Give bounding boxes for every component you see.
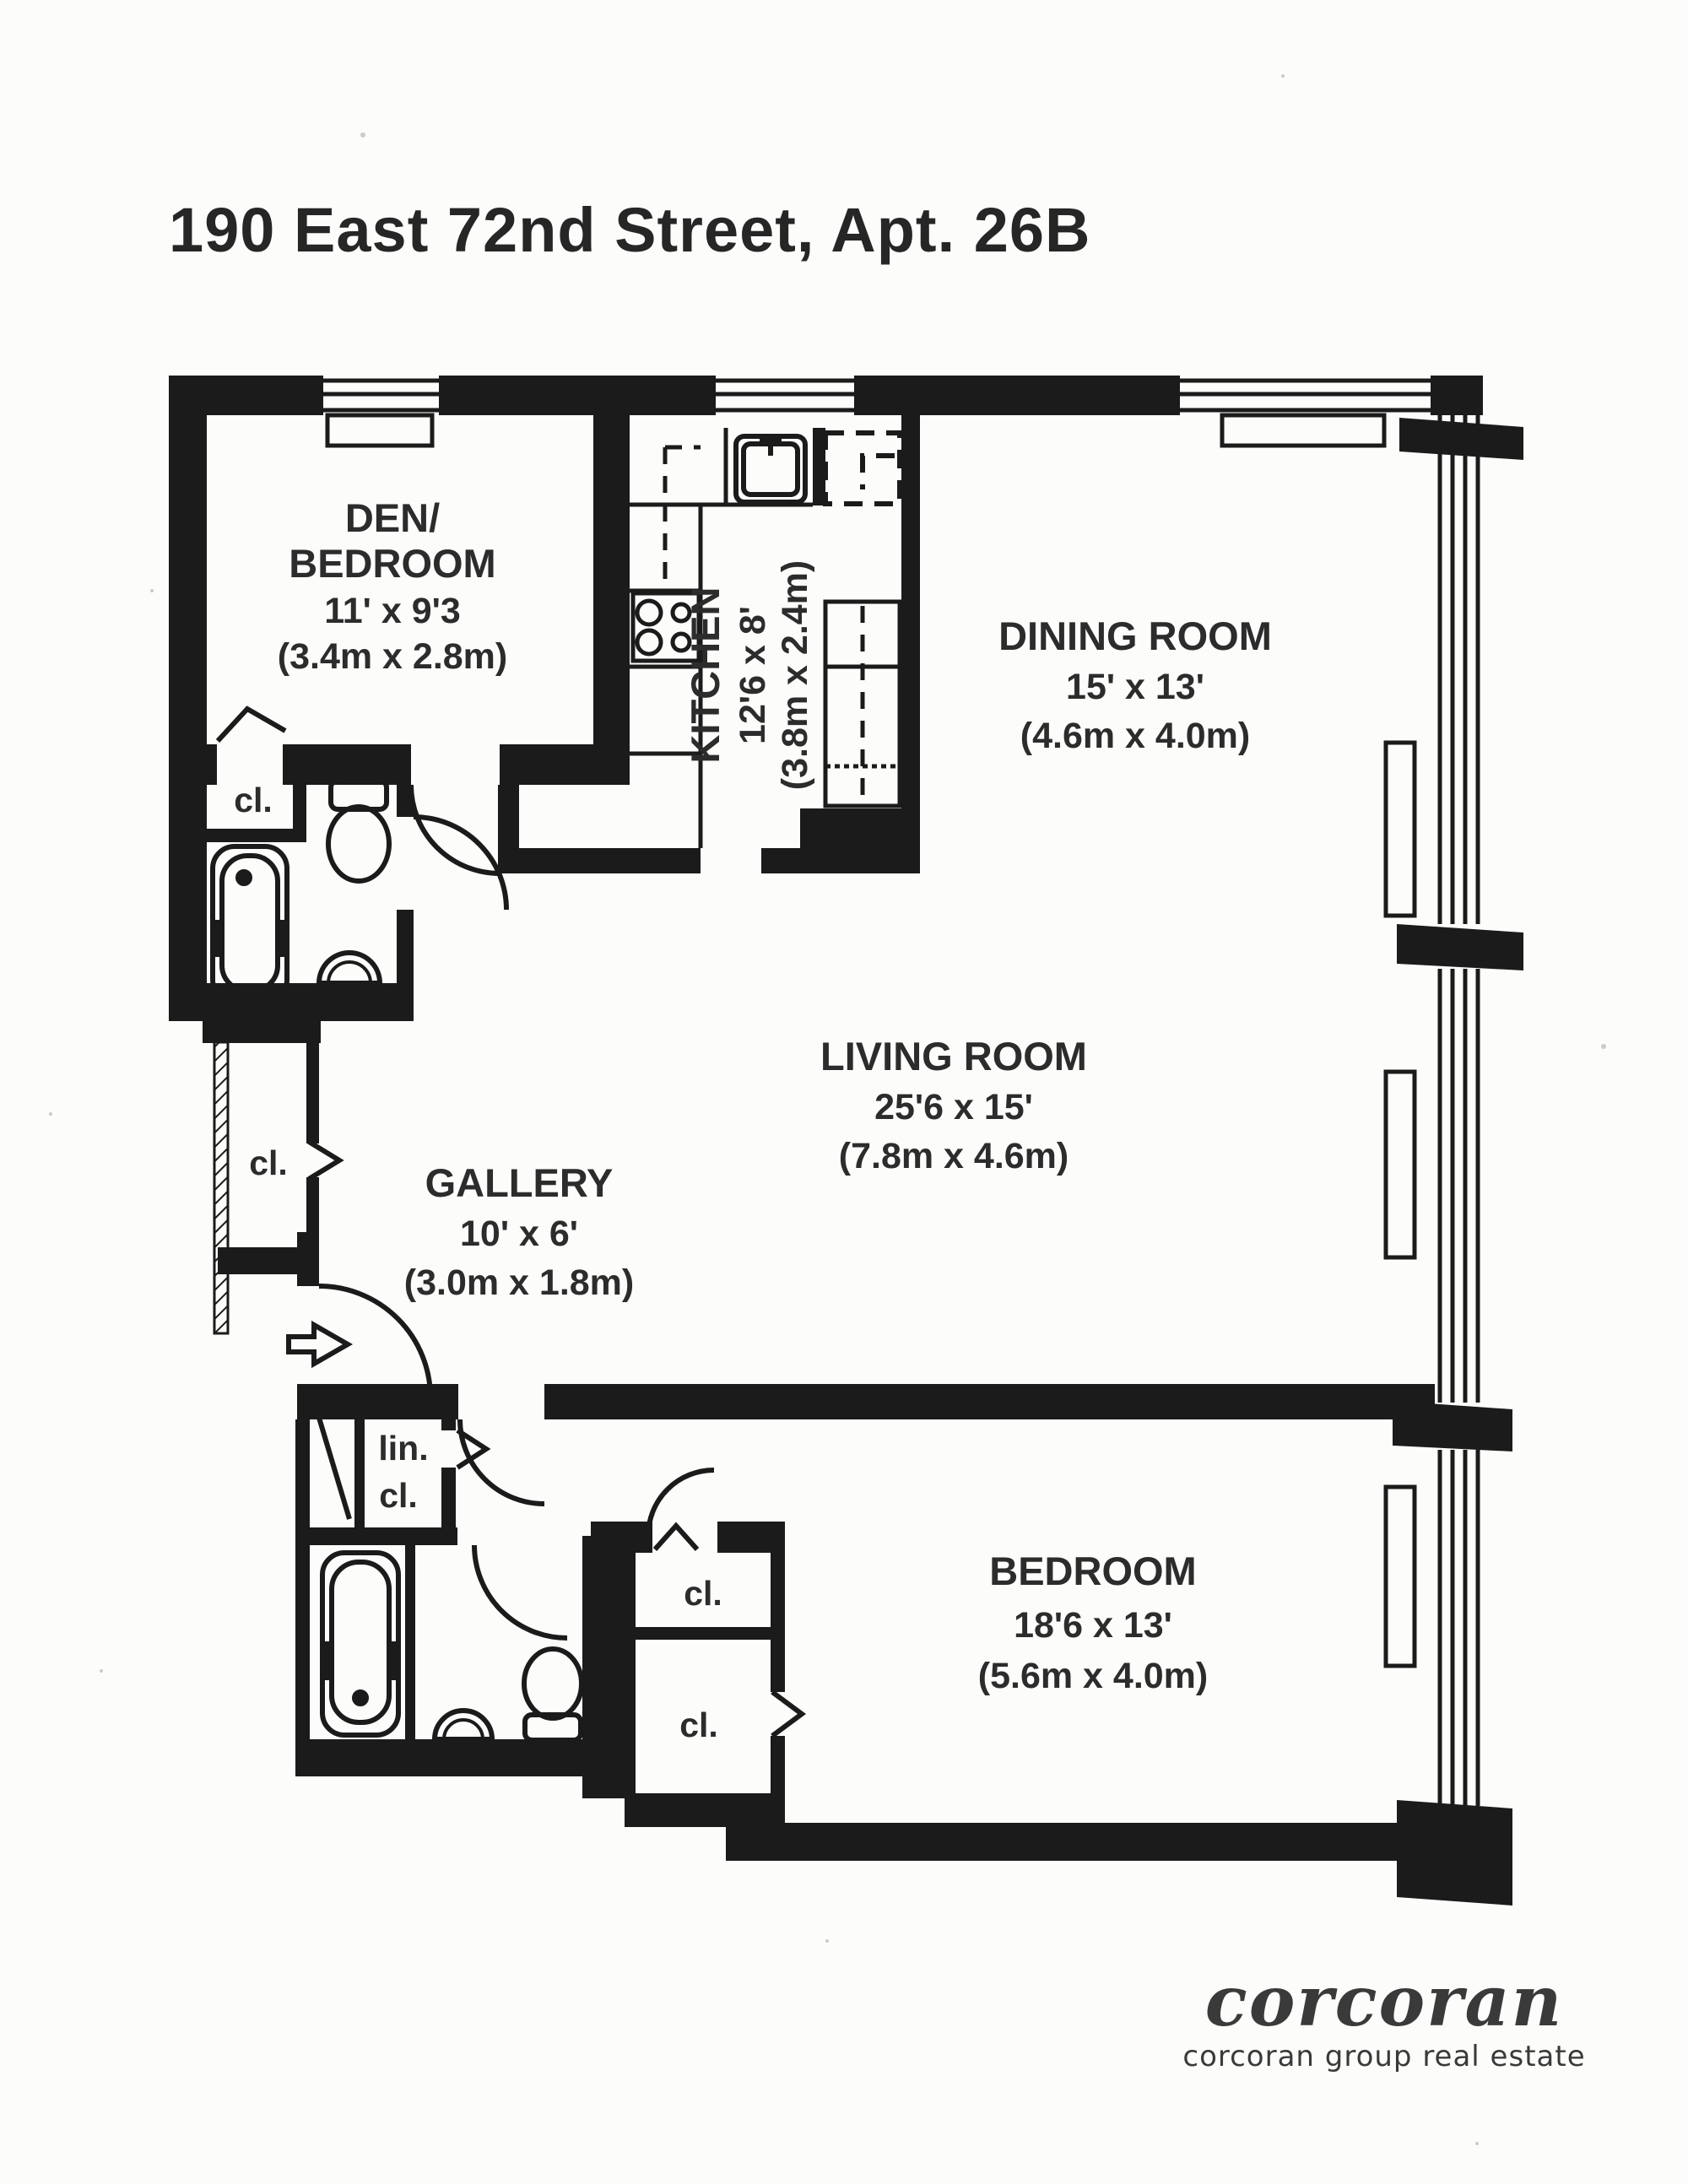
window-kitchen	[716, 381, 854, 410]
closet-label-bath1: cl.	[234, 781, 273, 819]
room-label-den: DEN/ BEDROOM 11' x 9'3 (3.4m x 2.8m)	[278, 495, 507, 677]
window-wall-right-3	[1440, 1450, 1478, 1806]
wall-entry-jamb	[297, 1232, 319, 1286]
sink-1	[319, 953, 380, 983]
svg-text:12'6 x 8': 12'6 x 8'	[733, 606, 773, 744]
svg-text:(3.8m x 2.4m): (3.8m x 2.4m)	[775, 560, 815, 790]
svg-text:(3.4m x 2.8m): (3.4m x 2.8m)	[278, 636, 507, 677]
wall-bath2-left-upper	[295, 1419, 310, 1529]
wall-top-corner	[1431, 376, 1483, 415]
svg-text:GALLERY: GALLERY	[425, 1160, 614, 1205]
wall-bath2-right-mass	[582, 1536, 636, 1798]
wall-lin-right-a	[441, 1393, 456, 1430]
page-title: 190 East 72nd Street, Apt. 26B	[169, 195, 1090, 265]
wall-gallery-south-a	[297, 1384, 458, 1419]
room-label-dining: DINING ROOM 15' x 13' (4.6m x 4.0m)	[998, 614, 1272, 756]
svg-text:(7.8m x 4.6m): (7.8m x 4.6m)	[839, 1136, 1069, 1176]
floorplan-drawing: 190 East 72nd Street, Apt. 26B DEN/ BEDR…	[0, 0, 1688, 2184]
radiator-dining	[1386, 743, 1415, 916]
room-label-gallery: GALLERY 10' x 6' (3.0m x 1.8m)	[404, 1160, 634, 1303]
wall-dining-west-notch	[761, 848, 800, 873]
toilet-1	[328, 781, 389, 881]
wall-brclo-top-b	[717, 1522, 785, 1553]
room-label-living: LIVING ROOM 25'6 x 15' (7.8m x 4.6m)	[820, 1034, 1087, 1176]
toilet-2	[524, 1649, 582, 1740]
wall-hatched-gallery	[214, 1042, 228, 1333]
svg-text:BEDROOM: BEDROOM	[289, 541, 495, 586]
wall-gclo-right-a	[306, 1042, 319, 1143]
window-dining-top	[1180, 381, 1431, 410]
wall-closet1-bottom	[207, 829, 306, 842]
door-chevron-lower-closet	[772, 1692, 802, 1736]
wall-bath2-left-lower	[295, 1527, 310, 1776]
wall-den-right	[593, 415, 630, 766]
wall-brclo-top-a	[591, 1522, 652, 1553]
wall-dining-west-mass	[800, 808, 920, 873]
refrigerator	[825, 433, 900, 504]
wall-left	[169, 376, 207, 1021]
svg-text:10' x 6': 10' x 6'	[460, 1214, 578, 1254]
sill-den	[327, 415, 432, 446]
wall-gallery-south-b	[544, 1384, 1435, 1419]
svg-text:(3.0m x 1.8m): (3.0m x 1.8m)	[404, 1262, 634, 1303]
door-chevron-den-closet	[218, 709, 285, 741]
closet-label-linen-1: lin.	[378, 1429, 428, 1468]
wall-tub2-divider	[405, 1545, 415, 1739]
wall-brclo-east-a	[771, 1553, 785, 1692]
wall-lin-right-b	[441, 1468, 456, 1533]
door-chevron-bedroom-closet	[655, 1526, 697, 1549]
sill-dining-top	[1222, 415, 1384, 446]
wall-closet1-right	[293, 744, 306, 842]
wall-bath1-bottom	[169, 983, 414, 1021]
wall-under-lin	[297, 1527, 457, 1545]
svg-text:DINING ROOM: DINING ROOM	[998, 614, 1272, 658]
closet-label-linen-2: cl.	[379, 1476, 418, 1515]
pier-living-bedroom	[1393, 1401, 1512, 1451]
wall-brclo-bottom	[625, 1793, 785, 1827]
wall-top-3	[854, 376, 1180, 415]
wall-hall-east	[498, 785, 519, 852]
svg-text:15' x 13': 15' x 13'	[1066, 667, 1204, 707]
wall-den-south-c	[500, 744, 630, 785]
wall-bath1-right-b	[397, 910, 414, 986]
closet-label-bedroom-lower: cl.	[679, 1706, 718, 1744]
bathtub-1	[211, 846, 289, 1002]
window-wall-right-1	[1440, 415, 1478, 924]
upper-cabinets-dashed	[665, 447, 701, 591]
pier-top-right	[1399, 418, 1523, 460]
door-chevron-gallery-closet	[309, 1142, 339, 1179]
svg-text:BEDROOM: BEDROOM	[989, 1549, 1196, 1593]
svg-text:DEN/: DEN/	[345, 495, 440, 540]
pier-dining-living	[1397, 924, 1523, 970]
svg-text:(5.6m x 4.0m): (5.6m x 4.0m)	[978, 1656, 1208, 1696]
window-den	[323, 381, 439, 410]
wall-kitchen-south	[498, 848, 701, 873]
svg-text:LIVING ROOM: LIVING ROOM	[820, 1034, 1087, 1078]
bathtub-2	[321, 1553, 400, 1735]
closet-label-gallery: cl.	[249, 1143, 288, 1182]
logo-brand: corcoran	[1205, 1961, 1563, 2042]
svg-text:18'6 x 13': 18'6 x 13'	[1014, 1605, 1172, 1646]
door-arc-bath2	[474, 1545, 567, 1638]
logo-tagline: corcoran group real estate	[1182, 2040, 1585, 2073]
room-label-kitchen: KITCHEN 12'6 x 8' (3.8m x 2.4m)	[683, 560, 815, 790]
floorplan-page: 190 East 72nd Street, Apt. 26B DEN/ BEDR…	[0, 0, 1688, 2184]
wall-brclo-east-b	[771, 1736, 785, 1797]
corcoran-logo: corcoran corcoran group real estate	[1182, 1961, 1585, 2073]
wall-dining-west	[901, 415, 920, 810]
wall-bedroom-south	[726, 1823, 1435, 1861]
wall-gclo-top	[203, 1019, 321, 1043]
kitchen-sink	[736, 436, 805, 502]
wall-top-2	[439, 376, 716, 415]
sink-2	[435, 1711, 492, 1739]
svg-text:25'6 x 15': 25'6 x 15'	[874, 1087, 1033, 1127]
svg-text:11' x 9'3: 11' x 9'3	[324, 591, 461, 631]
wall-brclo-divider	[591, 1627, 785, 1640]
svg-text:(4.6m x 4.0m): (4.6m x 4.0m)	[1020, 716, 1250, 756]
closet-label-bedroom-upper: cl.	[684, 1574, 722, 1613]
wall-den-south-a	[207, 744, 217, 785]
room-label-bedroom: BEDROOM 18'6 x 13' (5.6m x 4.0m)	[978, 1549, 1208, 1696]
wall-nook-divider	[354, 1393, 365, 1531]
radiator-living	[1386, 1072, 1415, 1257]
window-wall-right-2	[1440, 969, 1478, 1403]
svg-text:KITCHEN: KITCHEN	[683, 587, 728, 764]
pier-bedroom-bottom	[1397, 1800, 1512, 1906]
entry-arrow-icon	[289, 1325, 348, 1364]
door-arc-hall	[460, 1419, 544, 1504]
radiator-bedroom	[1386, 1487, 1415, 1666]
door-arc-bedroom-closet	[648, 1470, 714, 1536]
